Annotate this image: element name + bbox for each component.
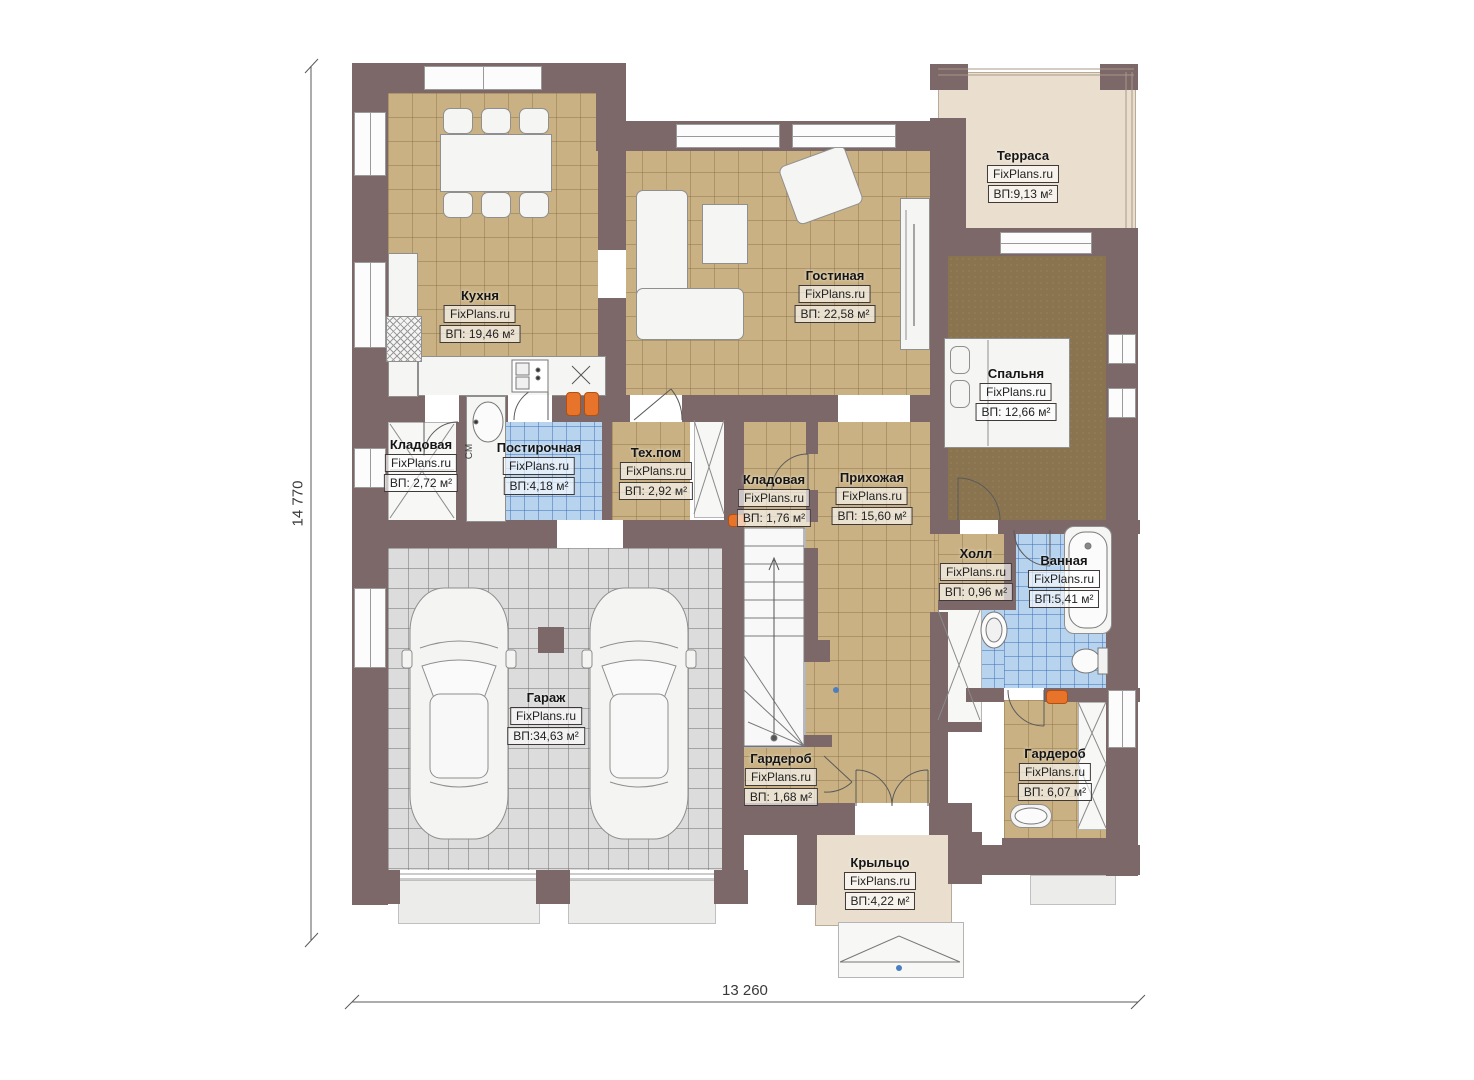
wall-garage-top bbox=[352, 520, 744, 548]
room-label-hall: Холл FixPlans.ru ВП: 0,96 м² bbox=[939, 546, 1013, 601]
room-name: Гардероб bbox=[750, 751, 811, 766]
garage-apron-left bbox=[398, 880, 540, 924]
pillow bbox=[950, 380, 970, 408]
watermark: FixPlans.ru bbox=[620, 462, 692, 480]
room-label-wardrobe-2: Гардероб FixPlans.ru ВП: 6,07 м² bbox=[1018, 746, 1092, 801]
dining-chair bbox=[481, 108, 511, 134]
room-name: Спальня bbox=[988, 366, 1044, 381]
room-area: ВП:5,41 м² bbox=[1029, 590, 1100, 608]
wall-stairs-newel bbox=[800, 640, 830, 662]
room-label-laundry: Постирочная FixPlans.ru ВП:4,18 м² bbox=[497, 440, 581, 495]
room-name: Кухня bbox=[461, 288, 499, 303]
room-label-bathroom: Ванная FixPlans.ru ВП:5,41 м² bbox=[1028, 553, 1100, 608]
dining-chair bbox=[519, 192, 549, 218]
wall-porch-left bbox=[797, 835, 817, 905]
room-area: ВП: 19,46 м² bbox=[440, 325, 521, 343]
garage-pier-right bbox=[714, 870, 748, 904]
wall-garage-right bbox=[722, 548, 744, 870]
dimension-vertical: 14 770 bbox=[289, 481, 306, 527]
room-label-kitchen: Кухня FixPlans.ru ВП: 19,46 м² bbox=[440, 288, 521, 343]
watermark: FixPlans.ru bbox=[444, 305, 516, 323]
room-label-tech-room: Тех.пом FixPlans.ru ВП: 2,92 м² bbox=[619, 445, 693, 500]
watermark: FixPlans.ru bbox=[836, 487, 908, 505]
kitchen-counter-bottom bbox=[418, 356, 606, 396]
room-label-pantry-1: Кладовая FixPlans.ru ВП: 2,72 м² bbox=[384, 437, 458, 492]
tv-bench bbox=[900, 198, 930, 350]
room-label-living-room: Гостиная FixPlans.ru ВП: 22,58 м² bbox=[795, 268, 876, 323]
wall-pantry2-hall-a bbox=[806, 422, 818, 454]
room-area: ВП: 22,58 м² bbox=[795, 305, 876, 323]
room-label-terrace: Терраса FixPlans.ru ВП:9,13 м² bbox=[987, 148, 1059, 203]
terrace-corner-left bbox=[930, 64, 968, 90]
room-name: Крыльцо bbox=[850, 855, 909, 870]
dining-table bbox=[440, 134, 552, 192]
wardrobe-stand bbox=[1010, 804, 1052, 828]
room-area: ВП:4,18 м² bbox=[504, 477, 575, 495]
opening-kitchen-living bbox=[598, 250, 626, 298]
floor-closet-mid bbox=[694, 420, 726, 518]
opening-entry-door bbox=[855, 803, 929, 835]
room-area: ВП: 12,66 м² bbox=[976, 403, 1057, 421]
watermark: FixPlans.ru bbox=[1019, 763, 1091, 781]
room-area: ВП: 2,92 м² bbox=[619, 482, 693, 500]
floor-plan: СМ Кухня FixPlans.ru ВП: 19,46 м² Гостин… bbox=[0, 0, 1474, 1080]
room-label-hallway: Прихожая FixPlans.ru ВП: 15,60 м² bbox=[832, 470, 913, 525]
wall-wardrobe2-bottom bbox=[1002, 838, 1108, 848]
watermark: FixPlans.ru bbox=[738, 489, 810, 507]
watermark: FixPlans.ru bbox=[503, 457, 575, 475]
plan-marker bbox=[896, 965, 902, 971]
room-label-wardrobe-1: Гардероб FixPlans.ru ВП: 1,68 м² bbox=[744, 751, 818, 806]
room-name: Постирочная bbox=[497, 440, 581, 455]
room-label-garage: Гараж FixPlans.ru ВП:34,63 м² bbox=[507, 690, 585, 745]
room-name: Терраса bbox=[997, 148, 1049, 163]
window-bedroom-2 bbox=[1108, 388, 1136, 418]
wall-hallway-bath bbox=[930, 612, 948, 805]
garage-pier-center bbox=[536, 870, 570, 904]
window-living-1 bbox=[676, 124, 780, 148]
window-pantry-left bbox=[354, 448, 386, 488]
garage-apron-right bbox=[568, 880, 716, 924]
room-area: ВП: 6,07 м² bbox=[1018, 783, 1092, 801]
window-wardrobe2 bbox=[1108, 690, 1136, 748]
watermark: FixPlans.ru bbox=[980, 383, 1052, 401]
washer-label: СМ bbox=[464, 444, 475, 459]
window-kitchen-top bbox=[424, 66, 542, 90]
window-bedroom-1 bbox=[1108, 334, 1136, 364]
room-name: Гостиная bbox=[806, 268, 865, 283]
room-name: Тех.пом bbox=[631, 445, 681, 460]
garage-pier-left bbox=[352, 870, 400, 904]
terrace-corner-right bbox=[1100, 64, 1138, 90]
room-area: ВП:34,63 м² bbox=[507, 727, 585, 745]
room-label-porch: Крыльцо FixPlans.ru ВП:4,22 м² bbox=[844, 855, 916, 910]
watermark: FixPlans.ru bbox=[1028, 570, 1100, 588]
room-area: ВП:4,22 м² bbox=[845, 892, 916, 910]
wall-closet-bottom bbox=[938, 722, 982, 732]
slipper bbox=[566, 392, 581, 416]
room-area: ВП: 15,60 м² bbox=[832, 507, 913, 525]
walkway-right bbox=[1030, 875, 1116, 905]
dining-chair bbox=[519, 108, 549, 134]
room-area: ВП:9,13 м² bbox=[988, 185, 1059, 203]
watermark: FixPlans.ru bbox=[510, 707, 582, 725]
room-name: Холл bbox=[960, 546, 993, 561]
dining-chair bbox=[443, 108, 473, 134]
slipper bbox=[584, 392, 599, 416]
kitchen-stove bbox=[386, 316, 422, 362]
dining-chair bbox=[443, 192, 473, 218]
coffee-table bbox=[702, 204, 748, 264]
wall-under-hall bbox=[938, 600, 1006, 610]
room-name: Кладовая bbox=[390, 437, 452, 452]
watermark: FixPlans.ru bbox=[385, 454, 457, 472]
opening-living-hallway bbox=[838, 395, 910, 422]
wall-top-living bbox=[614, 121, 962, 151]
sofa-horizontal bbox=[636, 288, 744, 340]
slipper bbox=[1046, 690, 1068, 704]
dimension-horizontal: 13 260 bbox=[722, 982, 768, 999]
watermark: FixPlans.ru bbox=[745, 768, 817, 786]
opening-tech bbox=[630, 395, 682, 422]
window-garage-left bbox=[354, 588, 386, 668]
wall-stairs-right bbox=[804, 548, 818, 648]
room-name: Гараж bbox=[527, 690, 566, 705]
wall-kitchen-living-a bbox=[598, 151, 626, 250]
garage-column bbox=[538, 627, 564, 653]
opening-garage bbox=[557, 520, 623, 548]
floor-stairs bbox=[744, 528, 806, 748]
room-name: Прихожая bbox=[840, 470, 904, 485]
terrace-wall-left bbox=[930, 118, 966, 232]
opening-bedroom-door bbox=[960, 520, 998, 534]
wall-bottom-right bbox=[948, 845, 1140, 875]
room-name: Кладовая bbox=[743, 472, 805, 487]
watermark: FixPlans.ru bbox=[987, 165, 1059, 183]
wall-wardrobe1-top bbox=[722, 735, 832, 747]
opening-pantry1 bbox=[425, 395, 459, 422]
room-name: Ванная bbox=[1040, 553, 1087, 568]
window-living-2 bbox=[792, 124, 896, 148]
plan-marker bbox=[833, 687, 839, 693]
room-label-pantry-2: Кладовая FixPlans.ru ВП: 1,76 м² bbox=[737, 472, 811, 527]
wall-bedroom-bottom-a bbox=[930, 520, 962, 534]
room-name: Гардероб bbox=[1024, 746, 1085, 761]
pillow bbox=[950, 346, 970, 374]
room-area: ВП: 1,68 м² bbox=[744, 788, 818, 806]
wall-laundry-tech bbox=[602, 420, 612, 522]
terrace-door-band bbox=[1000, 232, 1092, 254]
dining-chair bbox=[481, 192, 511, 218]
watermark: FixPlans.ru bbox=[799, 285, 871, 303]
watermark: FixPlans.ru bbox=[844, 872, 916, 890]
room-label-bedroom: Спальня FixPlans.ru ВП: 12,66 м² bbox=[976, 366, 1057, 421]
wall-bath-bottom-a bbox=[966, 688, 1004, 702]
window-left-1 bbox=[354, 112, 386, 176]
window-kitchen-left bbox=[354, 262, 386, 348]
room-area: ВП: 2,72 м² bbox=[384, 474, 458, 492]
watermark: FixPlans.ru bbox=[940, 563, 1012, 581]
opening-laundry bbox=[508, 395, 552, 422]
room-area: ВП: 0,96 м² bbox=[939, 583, 1013, 601]
room-area: ВП: 1,76 м² bbox=[737, 509, 811, 527]
